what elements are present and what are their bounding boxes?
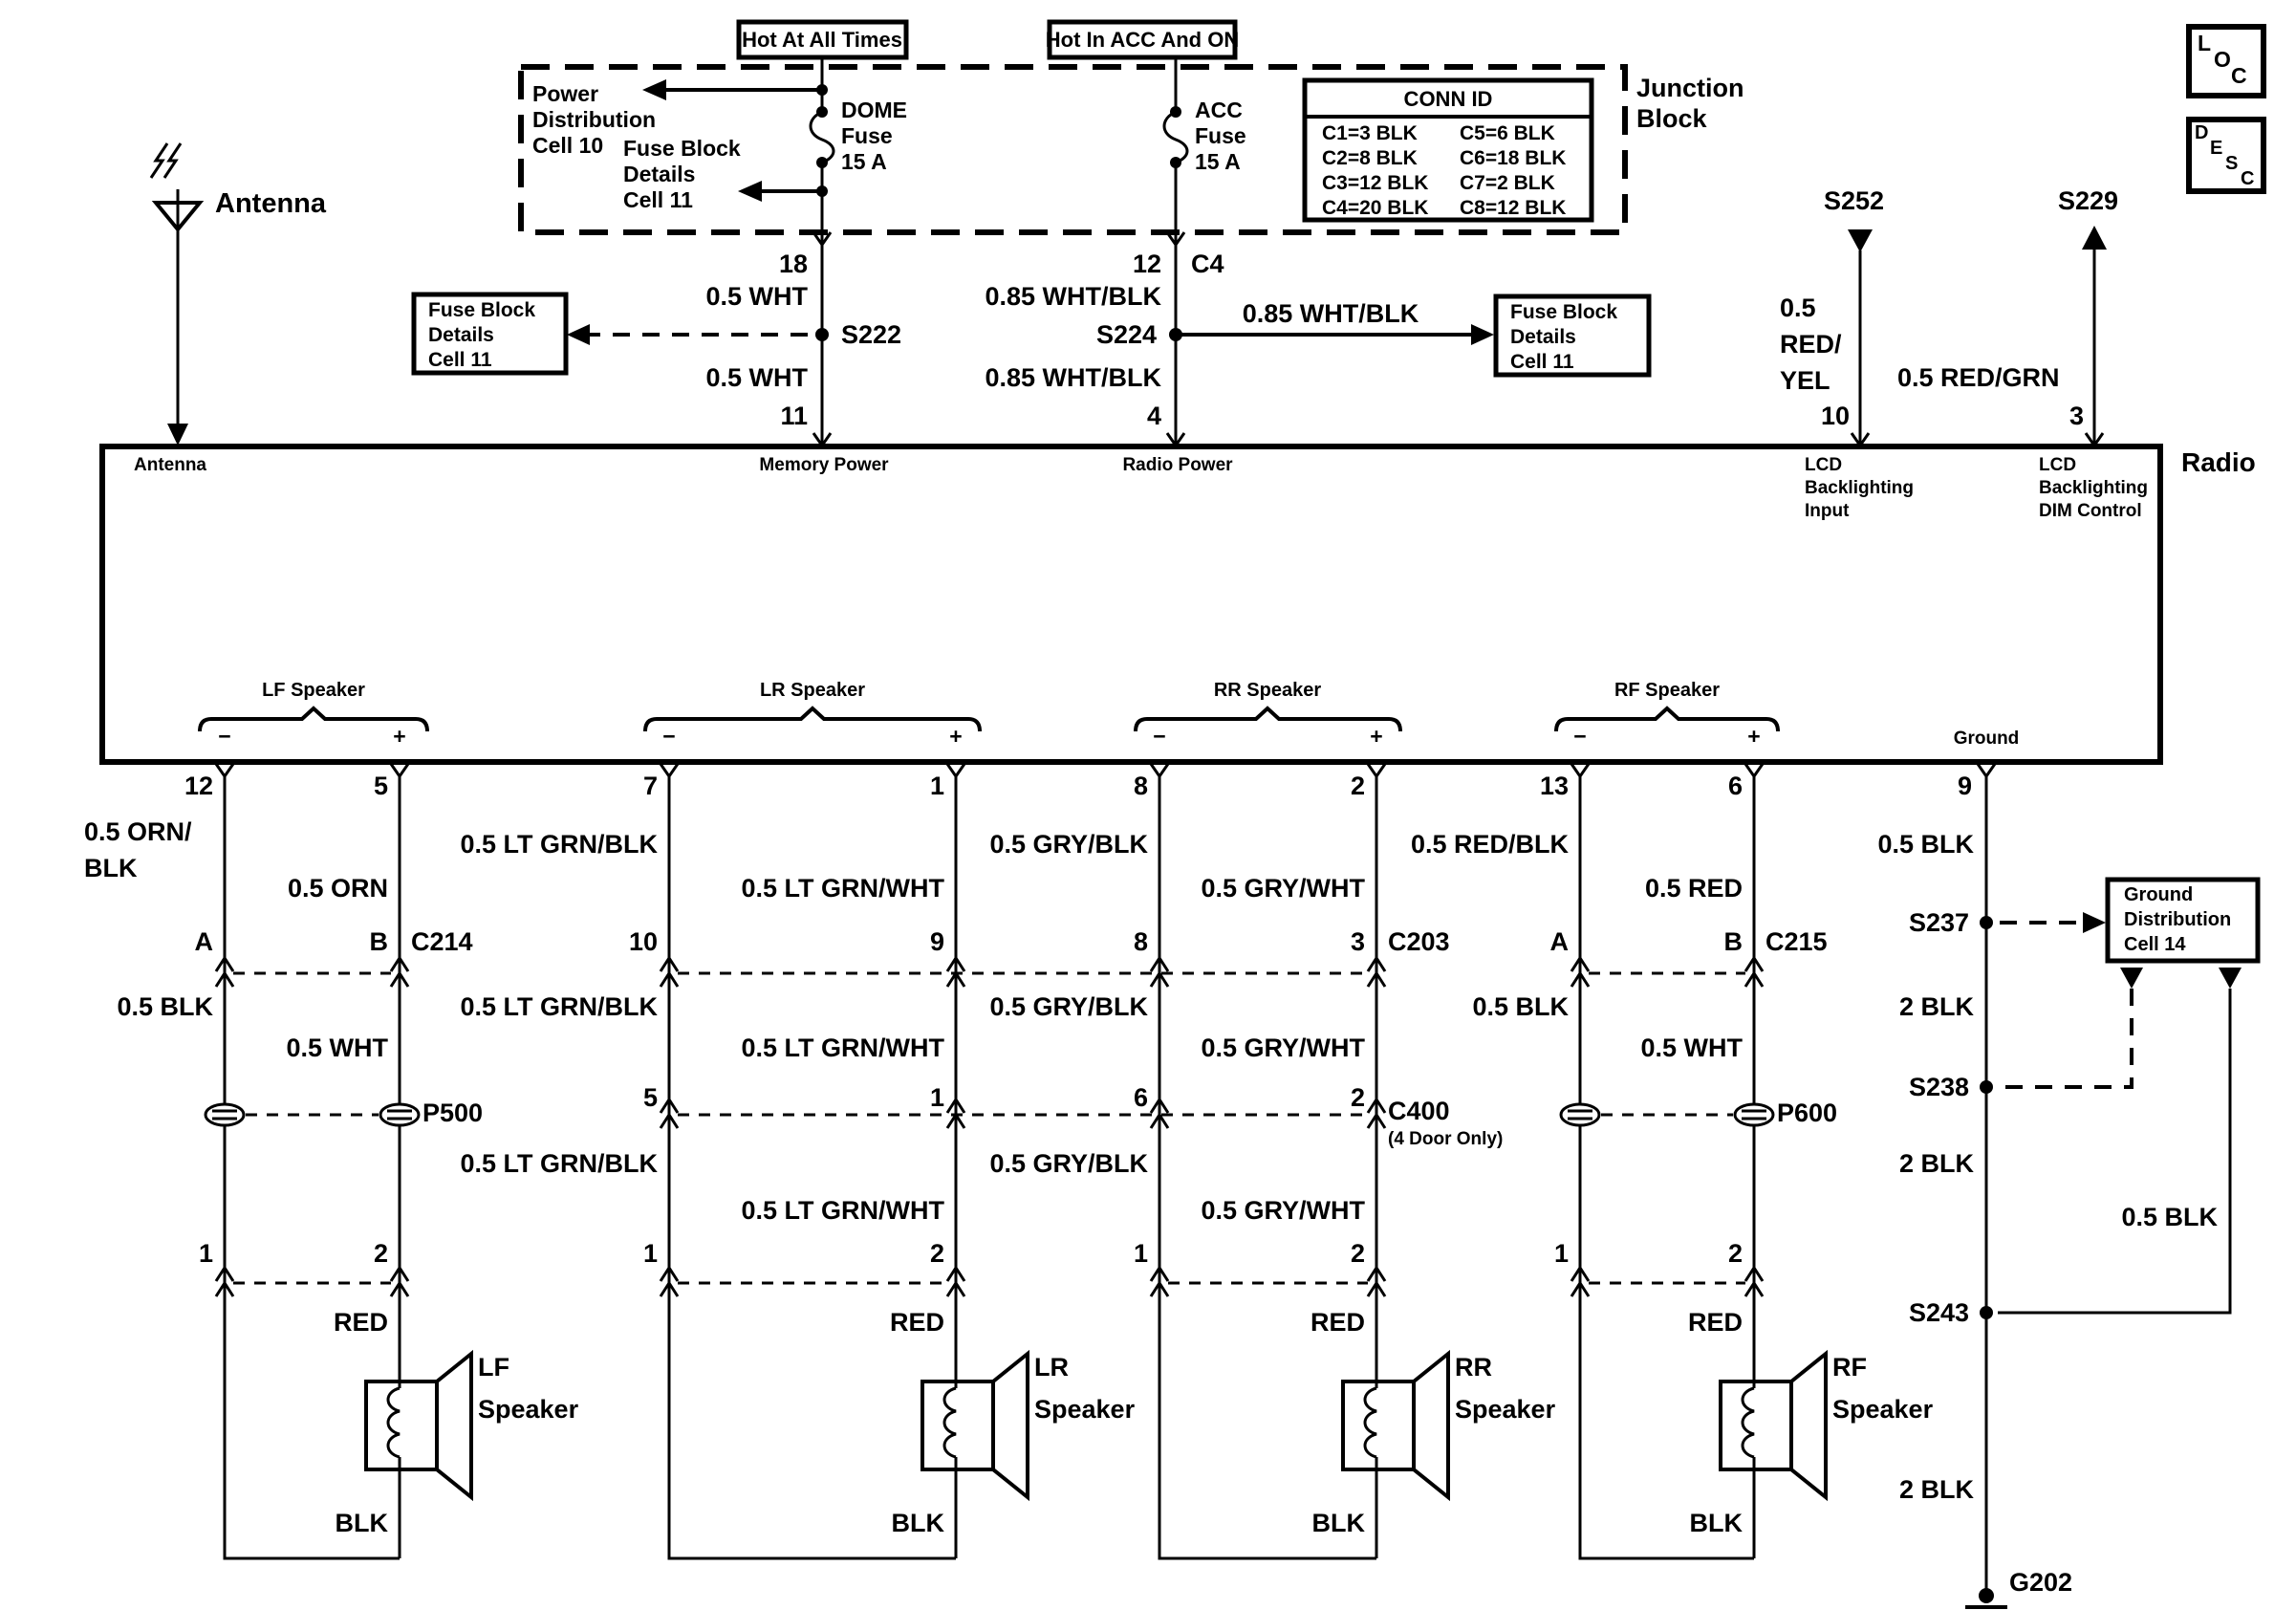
desc-box-letter: E bbox=[2210, 139, 2222, 159]
wire-label: 0.5 GRY/BLK bbox=[989, 993, 1148, 1020]
radio-fn-lcd-input: LCD bbox=[1805, 456, 1842, 475]
speaker-name: Speaker bbox=[1455, 1396, 1555, 1423]
wire-label: 0.5 LT GRN/BLK bbox=[460, 831, 658, 858]
fuse-block-ref-box: Details bbox=[428, 325, 494, 346]
pass-p500: P500 bbox=[422, 1099, 483, 1126]
power-distribution-ref: Power bbox=[532, 82, 598, 105]
wire-label: 2 BLK bbox=[1899, 993, 1974, 1020]
radio-fn-radio-power: Radio Power bbox=[1122, 456, 1232, 475]
wire-label: 0.5 LT GRN/WHT bbox=[742, 1034, 945, 1061]
polarity-plus: + bbox=[1370, 725, 1382, 748]
wire-label: 0.5 RED/GRN bbox=[1897, 364, 2060, 391]
conn-pin: B bbox=[1724, 928, 1744, 955]
wire-label: 0.5 BLK bbox=[117, 993, 213, 1020]
pin-11: 11 bbox=[780, 402, 808, 429]
pin: 9 bbox=[1958, 772, 1972, 799]
conn-pin: 10 bbox=[629, 928, 658, 955]
radio-fn-lcd-input: Input bbox=[1805, 502, 1849, 521]
pin-18: 18 bbox=[779, 250, 808, 277]
conn-pin: A bbox=[1550, 928, 1570, 955]
speaker-name: LF bbox=[478, 1354, 509, 1381]
wire-label: 2 BLK bbox=[1899, 1150, 1974, 1177]
wire-label: BLK bbox=[892, 1510, 945, 1536]
wire-label: 0.5 RED bbox=[1645, 875, 1743, 902]
desc-box-letter: S bbox=[2225, 154, 2238, 174]
splice-s224: S224 bbox=[1096, 321, 1157, 348]
speaker-name: Speaker bbox=[1832, 1396, 1933, 1423]
conn-pin: 8 bbox=[1134, 928, 1148, 955]
conn-pin: 2 bbox=[374, 1240, 388, 1267]
pin: 2 bbox=[1351, 772, 1365, 799]
ground-g202: G202 bbox=[2009, 1569, 2072, 1596]
fuse-block-ref: Cell 11 bbox=[623, 188, 693, 211]
speaker-name: Speaker bbox=[1034, 1396, 1135, 1423]
polarity-plus: + bbox=[393, 725, 405, 748]
conn-id-cell: C5=6 BLK bbox=[1460, 123, 1555, 144]
wire-label: BLK bbox=[1690, 1510, 1744, 1536]
desc-box-letter: D bbox=[2195, 123, 2208, 143]
pin-4: 4 bbox=[1147, 402, 1161, 429]
wire-label: BLK bbox=[84, 855, 138, 881]
wire-label: 0.5 BLK bbox=[1472, 993, 1569, 1020]
fuse-block-ref: Details bbox=[623, 163, 695, 185]
wire-label: 0.85 WHT/BLK bbox=[985, 283, 1161, 310]
conn-pin: 1 bbox=[930, 1084, 944, 1111]
connector-c400-note: (4 Door Only) bbox=[1388, 1130, 1503, 1149]
bracket-rf: RF Speaker bbox=[1614, 681, 1720, 701]
conn-id-cell: C3=12 BLK bbox=[1322, 173, 1428, 194]
wire-label: 0.5 WHT bbox=[1640, 1034, 1743, 1061]
conn-id-cell: C8=12 BLK bbox=[1460, 198, 1566, 219]
polarity-minus: − bbox=[1573, 725, 1586, 748]
pin: 8 bbox=[1134, 772, 1148, 799]
junction-block-label: Junction bbox=[1636, 75, 1744, 101]
conn-pin: 6 bbox=[1134, 1084, 1148, 1111]
wire-label: 0.5 LT GRN/BLK bbox=[460, 993, 658, 1020]
speaker-name: RR bbox=[1455, 1354, 1492, 1381]
wire-label: RED bbox=[334, 1309, 388, 1336]
hot-at-all-times-label: Hot At All Times bbox=[742, 29, 902, 51]
wire-label: 0.5 LT GRN/WHT bbox=[742, 1197, 945, 1224]
bracket-rr: RR Speaker bbox=[1214, 681, 1321, 701]
wire-label: 0.5 bbox=[1780, 294, 1816, 321]
splice-s237: S237 bbox=[1909, 909, 1969, 936]
pin: 1 bbox=[930, 772, 944, 799]
pin: 6 bbox=[1728, 772, 1743, 799]
conn-pin: 1 bbox=[1134, 1240, 1148, 1267]
wire-label: 0.5 BLK bbox=[1877, 831, 1974, 858]
splice-s222: S222 bbox=[841, 321, 901, 348]
fuse-block-ref-box: Cell 11 bbox=[428, 350, 492, 371]
lcd-backlight-wires bbox=[1848, 226, 2107, 446]
power-distribution-ref: Distribution bbox=[532, 108, 656, 131]
conn-pin: 2 bbox=[930, 1240, 944, 1267]
acc-fuse-label: ACC bbox=[1195, 98, 1243, 121]
fuse-block-ref: Fuse Block bbox=[623, 137, 741, 160]
polarity-minus: − bbox=[218, 725, 230, 748]
loc-box-letter: C bbox=[2231, 64, 2247, 87]
pin: 12 bbox=[184, 772, 213, 799]
wire-label: BLK bbox=[1312, 1510, 1366, 1536]
splice-s243: S243 bbox=[1909, 1299, 1969, 1326]
conn-pin: 3 bbox=[1351, 928, 1365, 955]
loc-box-letter: L bbox=[2198, 32, 2211, 54]
radio-title: Radio bbox=[2181, 448, 2256, 476]
wire-label: RED bbox=[1310, 1309, 1365, 1336]
bracket-lr: LR Speaker bbox=[760, 681, 865, 701]
conn-id-cell: C6=18 BLK bbox=[1460, 148, 1566, 169]
wire-label: 0.5 RED/BLK bbox=[1411, 831, 1569, 858]
connector-c215: C215 bbox=[1765, 928, 1828, 955]
dome-fuse-label: Fuse bbox=[841, 124, 893, 147]
pin-3: 3 bbox=[2069, 402, 2084, 429]
pass-p600: P600 bbox=[1777, 1099, 1837, 1126]
speaker-name: Speaker bbox=[478, 1396, 578, 1423]
desc-box-letter: C bbox=[2241, 169, 2254, 189]
conn-id-cell: C4=20 BLK bbox=[1322, 198, 1428, 219]
wire-label: 0.5 LT GRN/BLK bbox=[460, 1150, 658, 1177]
wire-label: 0.5 GRY/WHT bbox=[1201, 1034, 1365, 1061]
radio-fn-lcd-dim: DIM Control bbox=[2039, 502, 2142, 521]
wire-label: 0.5 WHT bbox=[286, 1034, 388, 1061]
pin: 13 bbox=[1540, 772, 1569, 799]
antenna-symbol bbox=[151, 143, 200, 446]
conn-pin: 5 bbox=[643, 1084, 658, 1111]
connector-c214: C214 bbox=[411, 928, 473, 955]
connector-c203: C203 bbox=[1388, 928, 1450, 955]
radio-fn-antenna: Antenna bbox=[134, 456, 206, 475]
wire-label: 0.5 GRY/BLK bbox=[989, 831, 1148, 858]
hot-in-acc-label: Hot In ACC And ON bbox=[1046, 29, 1239, 51]
fuse-block-ref-box: Fuse Block bbox=[428, 300, 535, 321]
polarity-minus: − bbox=[1153, 725, 1165, 748]
speaker-name: LR bbox=[1034, 1354, 1069, 1381]
conn-id-title: CONN ID bbox=[1404, 88, 1493, 110]
polarity-plus: + bbox=[1747, 725, 1760, 748]
ground-circuit bbox=[1965, 764, 2258, 1610]
wire-label: 0.5 GRY/BLK bbox=[989, 1150, 1148, 1177]
wire-label: 0.5 GRY/WHT bbox=[1201, 875, 1365, 902]
splice-s238: S238 bbox=[1909, 1074, 1969, 1100]
junction-block-label: Block bbox=[1636, 105, 1707, 132]
conn-id-cell: C1=3 BLK bbox=[1322, 123, 1418, 144]
wire-label: 0.5 GRY/WHT bbox=[1201, 1197, 1365, 1224]
connector-c400: C400 bbox=[1388, 1098, 1450, 1124]
conn-id-cell: C7=2 BLK bbox=[1460, 173, 1555, 194]
wire-label: YEL bbox=[1780, 367, 1830, 394]
radio-fn-memory: Memory Power bbox=[759, 456, 888, 475]
ground-distribution-ref: Cell 14 bbox=[2124, 935, 2185, 955]
pin: 5 bbox=[374, 772, 388, 799]
conn-pin: 1 bbox=[1554, 1240, 1569, 1267]
fuse-block-ref-box: Cell 11 bbox=[1510, 352, 1574, 373]
radio-fn-lcd-dim: Backlighting bbox=[2039, 479, 2148, 498]
radio-fn-lcd-input: Backlighting bbox=[1805, 479, 1914, 498]
wire-label: 0.5 ORN bbox=[288, 875, 388, 902]
wire-label: 0.85 WHT/BLK bbox=[985, 364, 1161, 391]
speaker-name: RF bbox=[1832, 1354, 1867, 1381]
ground-distribution-ref: Ground bbox=[2124, 885, 2193, 905]
radio-fn-lcd-dim: LCD bbox=[2039, 456, 2076, 475]
splice-s252: S252 bbox=[1824, 187, 1884, 214]
wire-label: RED bbox=[1688, 1309, 1743, 1336]
wire-label: 2 BLK bbox=[1899, 1476, 1974, 1503]
conn-pin: 2 bbox=[1728, 1240, 1743, 1267]
splice-s229: S229 bbox=[2058, 187, 2118, 214]
wire-label: 0.5 WHT bbox=[705, 364, 808, 391]
conn-pin: 9 bbox=[930, 928, 944, 955]
wire-label: 0.5 WHT bbox=[705, 283, 808, 310]
polarity-minus: − bbox=[662, 725, 675, 748]
antenna-label: Antenna bbox=[215, 189, 326, 218]
bracket-lf: LF Speaker bbox=[262, 681, 365, 701]
acc-fuse-label: Fuse bbox=[1195, 124, 1246, 147]
dome-fuse-label: DOME bbox=[841, 98, 907, 121]
wire-label: BLK bbox=[336, 1510, 389, 1536]
conn-pin: 2 bbox=[1351, 1084, 1365, 1111]
pin-10: 10 bbox=[1821, 402, 1850, 429]
fuse-block-ref-box: Details bbox=[1510, 327, 1576, 348]
fuse-block-ref-box: Fuse Block bbox=[1510, 302, 1617, 323]
wire-label: 0.5 LT GRN/WHT bbox=[742, 875, 945, 902]
conn-pin: B bbox=[370, 928, 389, 955]
connector-c4: C4 bbox=[1191, 250, 1224, 277]
conn-pin: 1 bbox=[643, 1240, 658, 1267]
polarity-plus: + bbox=[949, 725, 962, 748]
wire-label: 0.85 WHT/BLK bbox=[1243, 300, 1419, 327]
speaker-brackets bbox=[200, 708, 1778, 731]
loc-box-letter: O bbox=[2214, 48, 2231, 71]
wire-label: RED bbox=[890, 1309, 944, 1336]
conn-pin: A bbox=[195, 928, 214, 955]
power-distribution-ref: Cell 10 bbox=[532, 134, 603, 157]
ground-distribution-ref: Distribution bbox=[2124, 910, 2231, 930]
acc-fuse-label: 15 A bbox=[1195, 150, 1241, 173]
conn-pin: 1 bbox=[199, 1240, 213, 1267]
wire-label: RED/ bbox=[1780, 331, 1842, 358]
wire-label: 0.5 ORN/ bbox=[84, 818, 192, 845]
pin: 7 bbox=[643, 772, 658, 799]
wire-label: 0.5 BLK bbox=[2121, 1204, 2218, 1230]
conn-id-cell: C2=8 BLK bbox=[1322, 148, 1418, 169]
conn-pin: 2 bbox=[1351, 1240, 1365, 1267]
pin-12: 12 bbox=[1133, 250, 1161, 277]
dome-fuse-label: 15 A bbox=[841, 150, 887, 173]
radio-fn-ground: Ground bbox=[1954, 729, 2020, 749]
wiring-diagram-page: Hot At All Times Hot In ACC And ON Junct… bbox=[0, 0, 2296, 1610]
diagram-linework bbox=[0, 0, 2296, 1610]
